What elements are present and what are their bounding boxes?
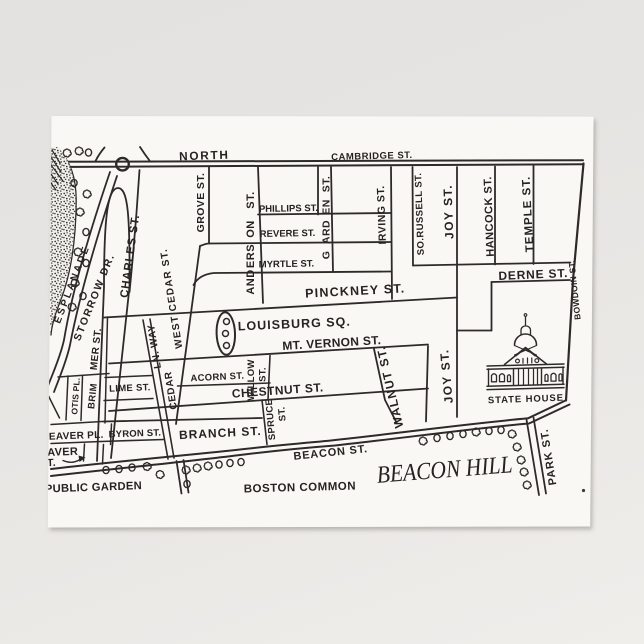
svg-text:JOY ST.: JOY ST.	[441, 184, 457, 239]
svg-text:REVERE ST.: REVERE ST.	[260, 228, 316, 240]
svg-text:LIME ST.: LIME ST.	[109, 382, 151, 394]
svg-text:BEAVER PL.: BEAVER PL.	[41, 430, 104, 443]
svg-text:EN: EN	[321, 199, 333, 214]
svg-text:BYRON ST.: BYRON ST.	[108, 428, 161, 441]
svg-text:ST.: ST.	[321, 176, 333, 192]
svg-text:ST.: ST.	[245, 191, 257, 208]
svg-text:ST.: ST.	[40, 457, 56, 470]
svg-text:AND: AND	[245, 269, 257, 294]
svg-text:G: G	[321, 251, 333, 260]
svg-text:ERS: ERS	[245, 244, 257, 268]
svg-text:WILLOW: WILLOW	[246, 359, 257, 400]
svg-text:ARD: ARD	[321, 220, 333, 244]
svg-text:GROVE ST.: GROVE ST.	[195, 173, 207, 233]
svg-text:PHILLIPS ST.: PHILLIPS ST.	[259, 203, 318, 215]
svg-text:MYRTLE ST.: MYRTLE ST.	[259, 259, 315, 271]
svg-text:NORTH: NORTH	[179, 148, 230, 164]
svg-text:ST.: ST.	[258, 367, 269, 382]
svg-text:ST.: ST.	[276, 406, 288, 422]
svg-text:ON: ON	[245, 220, 257, 238]
svg-text:IRVING ST.: IRVING ST.	[375, 185, 389, 244]
svg-text:CAMBRIDGE ST.: CAMBRIDGE ST.	[331, 150, 413, 163]
